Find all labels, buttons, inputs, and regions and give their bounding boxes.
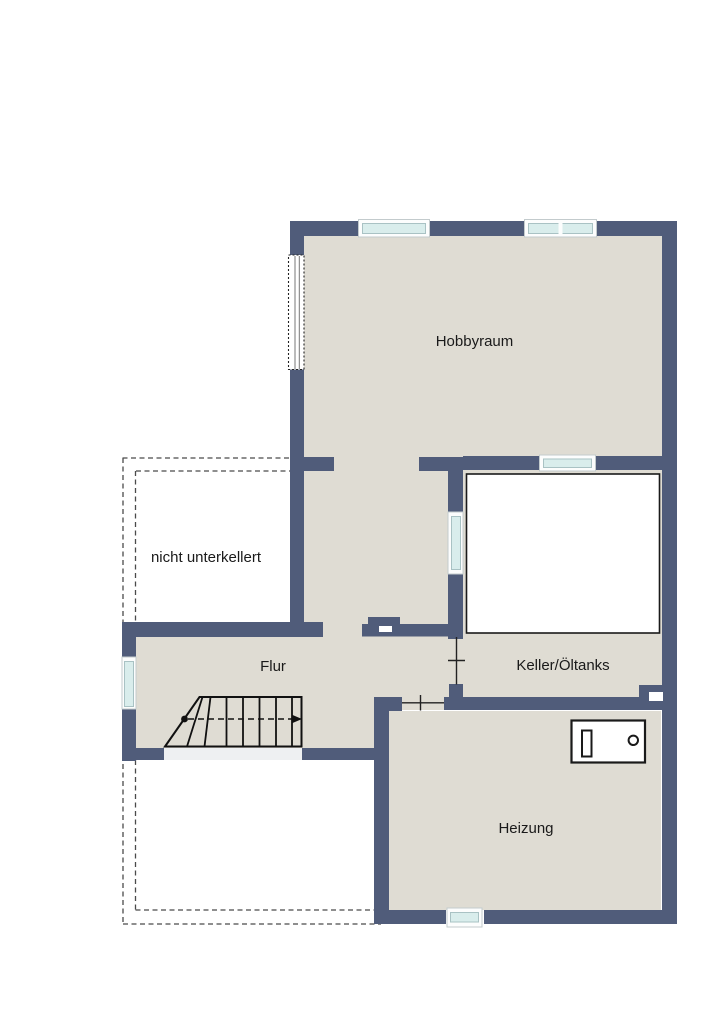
svg-text:Keller/Öltanks: Keller/Öltanks [516, 656, 609, 674]
svg-text:Flur: Flur [260, 658, 286, 675]
svg-text:Heizung: Heizung [498, 820, 553, 837]
svg-text:nicht unterkellert: nicht unterkellert [151, 549, 262, 566]
svg-text:Hobbyraum: Hobbyraum [436, 333, 514, 350]
